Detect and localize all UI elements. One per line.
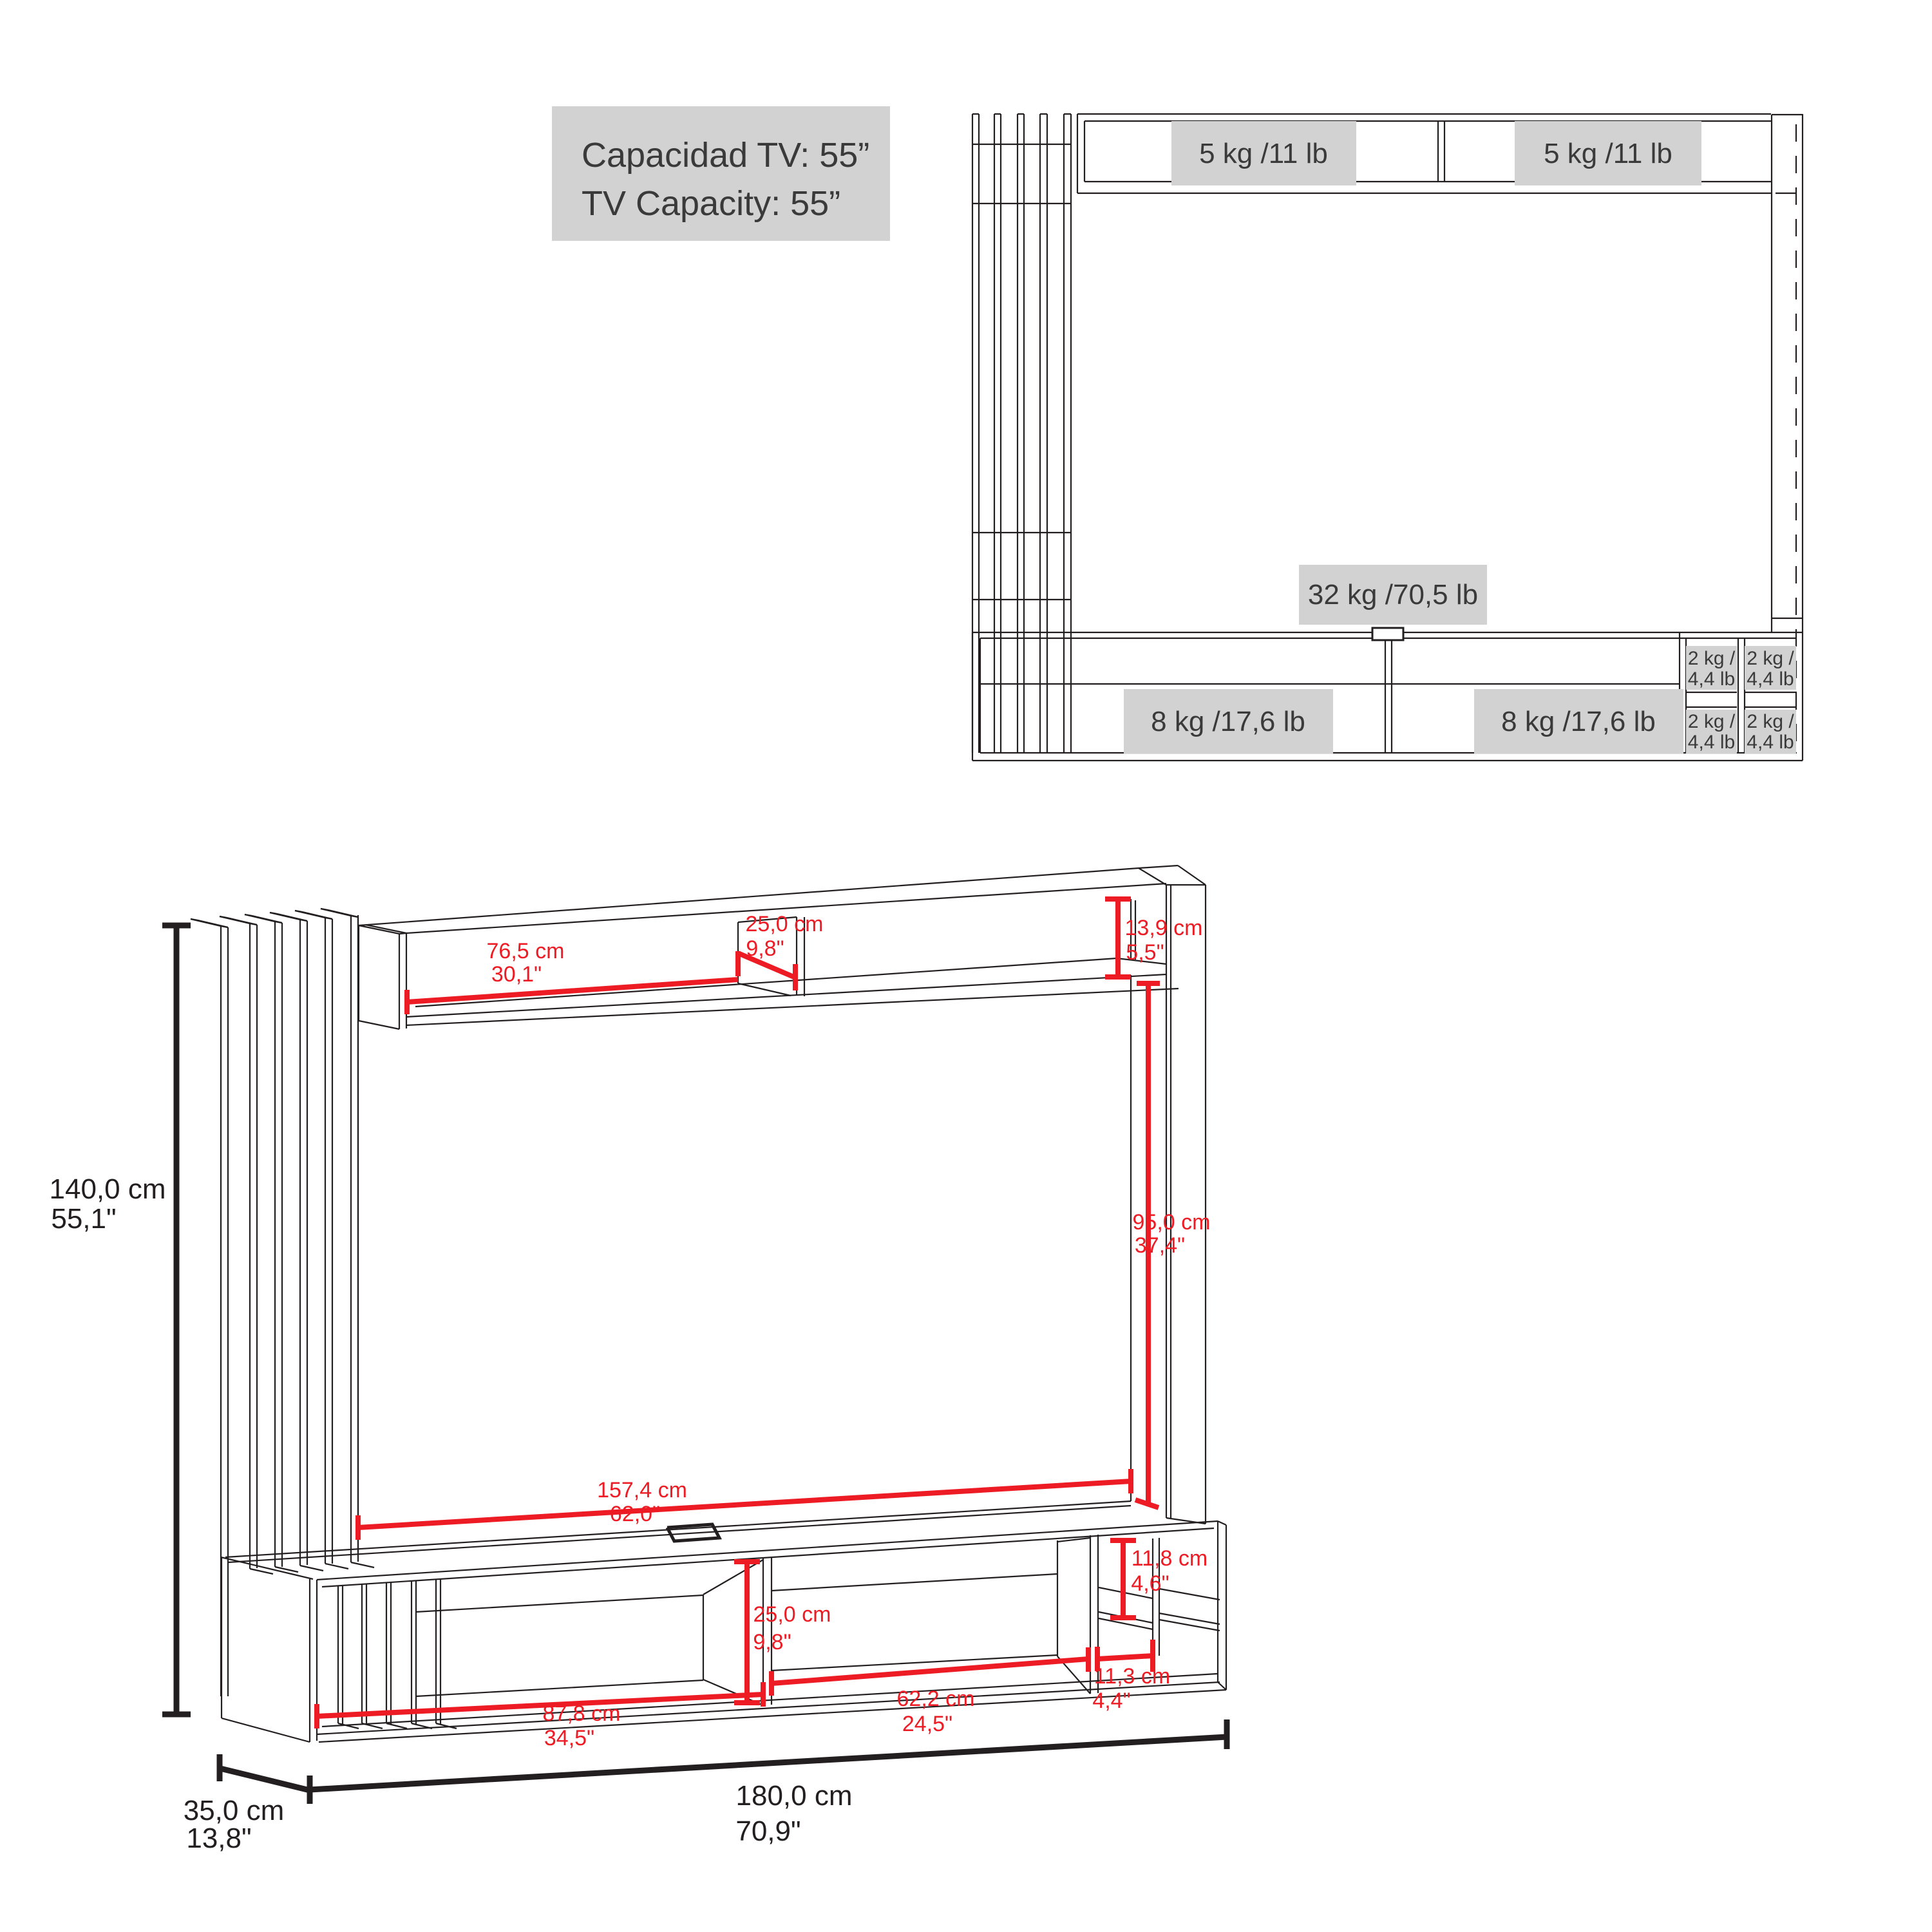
- svg-text:2 kg /: 2 kg /: [1688, 648, 1736, 669]
- svg-text:Capacidad TV: 55”: Capacidad TV: 55”: [582, 136, 869, 175]
- svg-text:4,4 lb: 4,4 lb: [1688, 732, 1735, 753]
- svg-text:37,4": 37,4": [1135, 1233, 1185, 1258]
- svg-text:140,0 cm: 140,0 cm: [50, 1173, 166, 1205]
- svg-text:13,8": 13,8": [186, 1823, 251, 1854]
- svg-text:9,8": 9,8": [746, 936, 784, 961]
- svg-text:4,4 lb: 4,4 lb: [1688, 668, 1735, 690]
- svg-text:11,8 cm: 11,8 cm: [1132, 1546, 1207, 1571]
- svg-text:34,5": 34,5": [544, 1726, 594, 1750]
- svg-text:TV Capacity: 55”: TV Capacity: 55”: [582, 184, 840, 223]
- svg-text:25,0 cm: 25,0 cm: [746, 912, 824, 936]
- svg-text:62,0": 62,0": [610, 1502, 660, 1526]
- svg-text:5 kg /11 lb: 5 kg /11 lb: [1544, 138, 1672, 169]
- svg-text:24,5": 24,5": [902, 1712, 952, 1736]
- svg-text:9,8": 9,8": [753, 1630, 791, 1654]
- svg-text:5,5": 5,5": [1126, 940, 1164, 965]
- svg-text:30,1": 30,1": [491, 962, 542, 987]
- svg-text:76,5 cm: 76,5 cm: [487, 939, 565, 963]
- svg-text:13,9 cm: 13,9 cm: [1125, 916, 1203, 940]
- svg-text:11,3 cm: 11,3 cm: [1094, 1664, 1170, 1689]
- svg-text:8 kg /17,6 lb: 8 kg /17,6 lb: [1501, 706, 1656, 737]
- svg-text:87,8 cm: 87,8 cm: [543, 1701, 621, 1726]
- svg-text:55,1": 55,1": [51, 1203, 116, 1235]
- svg-text:5 kg /11 lb: 5 kg /11 lb: [1199, 138, 1328, 169]
- svg-text:2 kg /: 2 kg /: [1688, 711, 1736, 732]
- svg-text:180,0 cm: 180,0 cm: [736, 1780, 853, 1812]
- svg-text:95,0 cm: 95,0 cm: [1133, 1210, 1211, 1235]
- svg-text:157,4 cm: 157,4 cm: [597, 1478, 687, 1502]
- svg-text:2 kg /: 2 kg /: [1747, 711, 1794, 732]
- svg-text:35,0 cm: 35,0 cm: [184, 1795, 285, 1826]
- svg-text:4,6": 4,6": [1131, 1571, 1169, 1596]
- svg-text:62,2 cm: 62,2 cm: [897, 1687, 975, 1711]
- svg-text:25,0 cm: 25,0 cm: [753, 1602, 831, 1627]
- svg-text:32 kg /70,5 lb: 32 kg /70,5 lb: [1308, 579, 1478, 611]
- svg-text:8 kg /17,6 lb: 8 kg /17,6 lb: [1151, 706, 1305, 737]
- svg-text:70,9": 70,9": [735, 1815, 800, 1847]
- svg-text:4,4": 4,4": [1092, 1689, 1130, 1713]
- svg-text:2 kg /: 2 kg /: [1747, 648, 1794, 669]
- svg-text:4,4 lb: 4,4 lb: [1747, 732, 1794, 753]
- svg-text:4,4 lb: 4,4 lb: [1747, 668, 1794, 690]
